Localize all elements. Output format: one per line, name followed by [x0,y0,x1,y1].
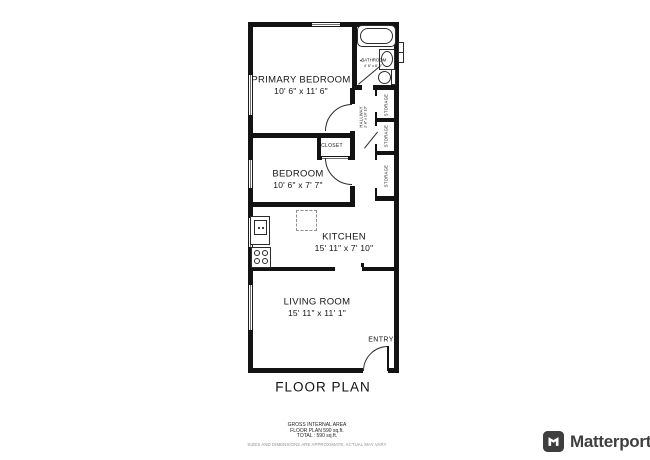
wall [375,118,399,122]
room-dims-living-room: 15' 11" x 11' 1" [288,308,346,318]
room-label-storage-1: STORAGE [384,93,389,116]
room-label-kitchen: KITCHEN [322,232,366,243]
room-label-closet: CLOSET [321,143,343,149]
total-area: TOTAL : 590 sq.ft. [246,434,388,440]
door-arc-bedroom [325,158,352,185]
faucet-dot-icon [258,227,260,229]
door-arc-entry [363,346,388,371]
room-label-hallway: HALLWAY 2' 8" x 10' 10" [358,106,367,128]
entry-door-leaf [387,346,389,371]
hallway-name: HALLWAY [358,106,363,128]
wall [362,267,399,271]
water-heater-icon [398,42,404,63]
matterport-icon [543,431,564,452]
door-jamb [361,263,364,267]
toilet-bowl-icon [378,71,391,84]
window [312,22,340,27]
room-label-bedroom: BEDROOM [272,169,323,180]
area-summary: GROSS INTERNAL AREA FLOOR PLAN 590 sq.ft… [246,423,388,447]
kitchen-sink-icon [254,220,267,235]
bathtub-inner-icon [360,28,393,44]
burner-icon [254,258,260,264]
floor-plan-page: PRIMARY BEDROOM 10' 6" x 11' 6" BEDROOM … [0,0,650,460]
faucet-dot-icon [262,227,264,229]
storage-opening [375,160,377,188]
room-label-storage-3: STORAGE [384,164,389,187]
room-dims-primary-bedroom: 10' 6" x 11' 6" [274,86,328,96]
room-label-living-room: LIVING ROOM [284,297,351,308]
burner-icon [254,250,260,256]
wall [248,22,253,75]
room-dims-bedroom: 10' 6" x 7' 7" [273,180,322,190]
room-label-bathroom: ◂BATHROOM [360,58,387,63]
window [248,160,253,188]
wall [248,133,355,138]
wall [375,151,399,155]
matterport-logo: Matterport [543,431,650,452]
wall [248,330,253,373]
toilet-tank-icon [391,69,396,85]
wall [350,88,355,104]
page-title: FLOOR PLAN [275,380,371,395]
disclaimer-text: SIZES AND DIMENSIONS ARE APPROXIMATE, AC… [246,442,388,447]
burner-icon [262,258,268,264]
wall [248,202,350,207]
wall [248,368,363,373]
appliance-dashed-outline [296,210,317,231]
room-dims-kitchen: 15' 11" x 7' 10" [315,243,374,253]
wall [375,196,399,201]
burner-icon [262,250,268,256]
matterport-wordmark: Matterport [570,432,650,452]
bathroom-label-text: BATHROOM [361,58,386,63]
room-label-entry: ENTRY [368,337,394,344]
window [248,285,253,330]
wall [248,22,312,27]
room-label-primary-bedroom: PRIMARY BEDROOM [251,75,350,86]
room-dims-bathroom: 4' 6" x 6' 8" [364,64,382,68]
room-label-storage-2: STORAGE [384,125,389,148]
wall [350,186,355,207]
door-arc-primary-bedroom [325,104,352,131]
hallway-dims: 2' 8" x 10' 10" [363,106,367,128]
storage-opening [375,96,377,112]
